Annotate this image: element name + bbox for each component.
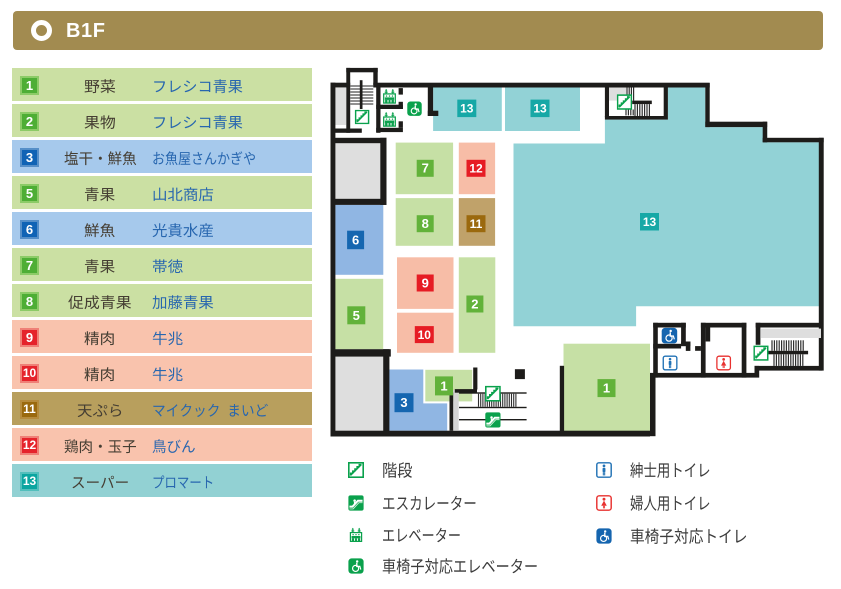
svg-text:1: 1	[603, 381, 610, 396]
svg-text:3: 3	[400, 395, 407, 410]
svg-text:9: 9	[422, 275, 429, 290]
svg-text:7: 7	[422, 161, 429, 176]
svg-text:13: 13	[643, 215, 657, 229]
svg-text:2: 2	[471, 296, 478, 311]
svg-text:10: 10	[418, 328, 432, 342]
svg-text:12: 12	[469, 162, 483, 176]
svg-text:5: 5	[353, 308, 360, 323]
svg-text:13: 13	[460, 102, 474, 116]
svg-text:6: 6	[352, 233, 359, 248]
svg-text:11: 11	[470, 217, 483, 231]
svg-text:13: 13	[533, 102, 547, 116]
svg-text:8: 8	[422, 216, 429, 231]
svg-text:1: 1	[440, 378, 447, 393]
